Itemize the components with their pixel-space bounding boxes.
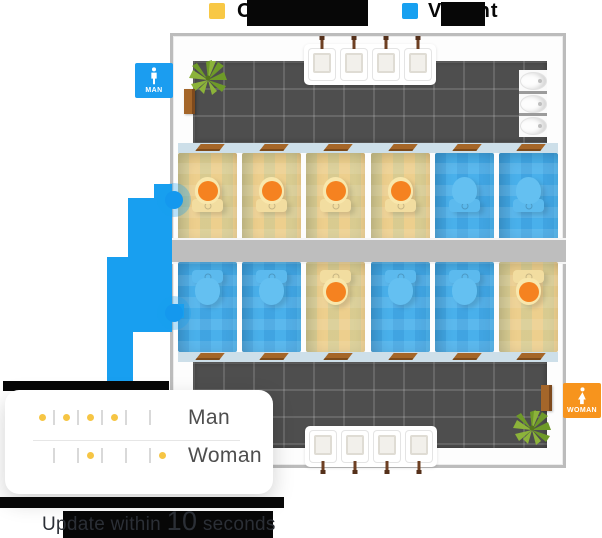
occupancy-dot [63,414,70,421]
toilet [371,270,430,305]
sink [405,430,433,463]
occupancy-slot-4 [103,403,125,431]
sink [404,48,432,81]
woman-badge-label: WOMAN [567,407,597,414]
faucet-pipe [418,461,421,474]
sink [308,48,336,81]
stall-6-occupied [499,262,558,352]
room-separator-wall [170,240,566,262]
occupancy-slot-2 [55,403,77,431]
sink [372,48,400,81]
urinal-partition [519,91,547,94]
toilet [435,177,494,212]
update-note-prefix: Update within [42,514,161,535]
toilet-bowl [516,177,541,204]
toilet-bowl [259,278,284,305]
restroom-occupancy-monitor: Occupied Vacant [0,0,602,538]
toilet-bowl [195,278,220,305]
urinal [521,118,546,134]
faucet-pipe [386,461,389,474]
sink-basin [346,435,364,455]
sink [341,430,369,463]
urinal [521,96,546,112]
stall-3-occupied [306,262,365,352]
woman-badge: WOMAN [563,383,601,418]
stall-4-vacant [371,262,430,352]
stall-door [259,144,288,151]
man-badge: MAN [135,63,173,98]
sink-basin [377,53,395,73]
stall-door [388,353,417,360]
sink-basin [313,53,331,73]
sink-basin [410,435,428,455]
sink-basin [409,53,427,73]
occupancy-slot-3 [79,441,101,469]
stall-door [388,144,417,151]
stall-4-occupied [371,153,430,240]
stall-5-vacant [435,262,494,352]
stall-2-occupied [242,153,301,240]
man-stall-row [178,153,558,240]
occupancy-dot [159,452,166,459]
toilet-bowl [516,278,541,305]
stall-2-vacant [242,262,301,352]
occupancy-slot-6 [151,441,173,469]
occupancy-slot-6 [151,403,173,431]
woman-stall-door-strip [178,352,558,362]
sink [340,48,368,81]
woman-icon [576,387,589,406]
stall-door [516,353,545,360]
toilet [435,270,494,305]
woman-room-door [541,385,552,411]
woman-stall-row [178,262,558,352]
toilet-bowl [388,278,413,305]
update-note-suffix: seconds [203,514,276,535]
toilet-bowl [323,177,348,204]
toilet-bowl [195,177,220,204]
woman-row-label: Woman [188,444,262,468]
faucet-pipe [322,461,325,474]
toilet-bowl [259,177,284,204]
toilet [371,177,430,212]
stall-door [452,144,481,151]
occupant-indicator [198,181,218,201]
stall-6-vacant [499,153,558,240]
toilet-bowl [323,278,348,305]
toilet [306,177,365,212]
stall-3-occupied [306,153,365,240]
sink [309,430,337,463]
status-card: Man Woman [5,390,273,494]
sink-basin [314,435,332,455]
entrance-dot-woman [165,304,183,322]
occupancy-slot-3 [79,403,101,431]
stall-door [323,353,352,360]
stall-door [195,144,224,151]
toilet [242,177,301,212]
faucet-pipe [354,461,357,474]
toilet [499,177,558,212]
sink-basin [378,435,396,455]
entrance-dot-man [165,191,183,209]
occupancy-dot [87,452,94,459]
toilet-bowl [388,177,413,204]
glitch-box [247,0,368,26]
stall-door [516,144,545,151]
occupancy-slot-5 [127,403,149,431]
occupancy-dot [111,414,118,421]
urinal-zone [519,70,547,137]
occupancy-dot [87,414,94,421]
plant-icon [512,408,552,453]
sink [373,430,401,463]
man-icon [148,67,160,86]
man-badge-label: MAN [145,87,162,94]
occupancy-slot-4 [103,441,125,469]
occupant-indicator [326,282,346,302]
occupant-indicator [391,181,411,201]
faucet-pipe [321,36,324,49]
occupancy-slot-1 [31,403,53,431]
occupant-indicator [326,181,346,201]
man-occupancy-row [31,403,173,431]
toilet [499,270,558,305]
stall-5-vacant [435,153,494,240]
stall-door [452,353,481,360]
stall-door [259,353,288,360]
faucet-pipe [353,36,356,49]
toilet [306,270,365,305]
urinal-partition [519,113,547,116]
occupied-color-swatch [209,3,225,19]
toilet-bowl [452,278,477,305]
occupant-indicator [519,282,539,302]
vacant-color-swatch [402,3,418,19]
occupancy-slot-1 [31,441,53,469]
glitch-box [441,2,485,26]
occupancy-slot-5 [127,441,149,469]
man-stall-door-strip [178,143,558,153]
stall-door [323,144,352,151]
toilet-bowl [452,177,477,204]
man-sink-row [304,44,436,85]
stall-door [195,353,224,360]
man-row-label: Man [188,406,230,430]
woman-sink-row [305,426,437,467]
occupancy-slot-2 [55,441,77,469]
toilet [242,270,301,305]
faucet-pipe [385,36,388,49]
faucet-pipe [417,36,420,49]
sink-basin [345,53,363,73]
occupancy-dot [39,414,46,421]
woman-occupancy-row [31,441,173,469]
occupant-indicator [262,181,282,201]
update-interval-value: 10 [167,506,198,536]
man-room-door [184,89,195,114]
update-note: Update within 10 seconds [42,503,276,538]
urinal [521,73,546,89]
